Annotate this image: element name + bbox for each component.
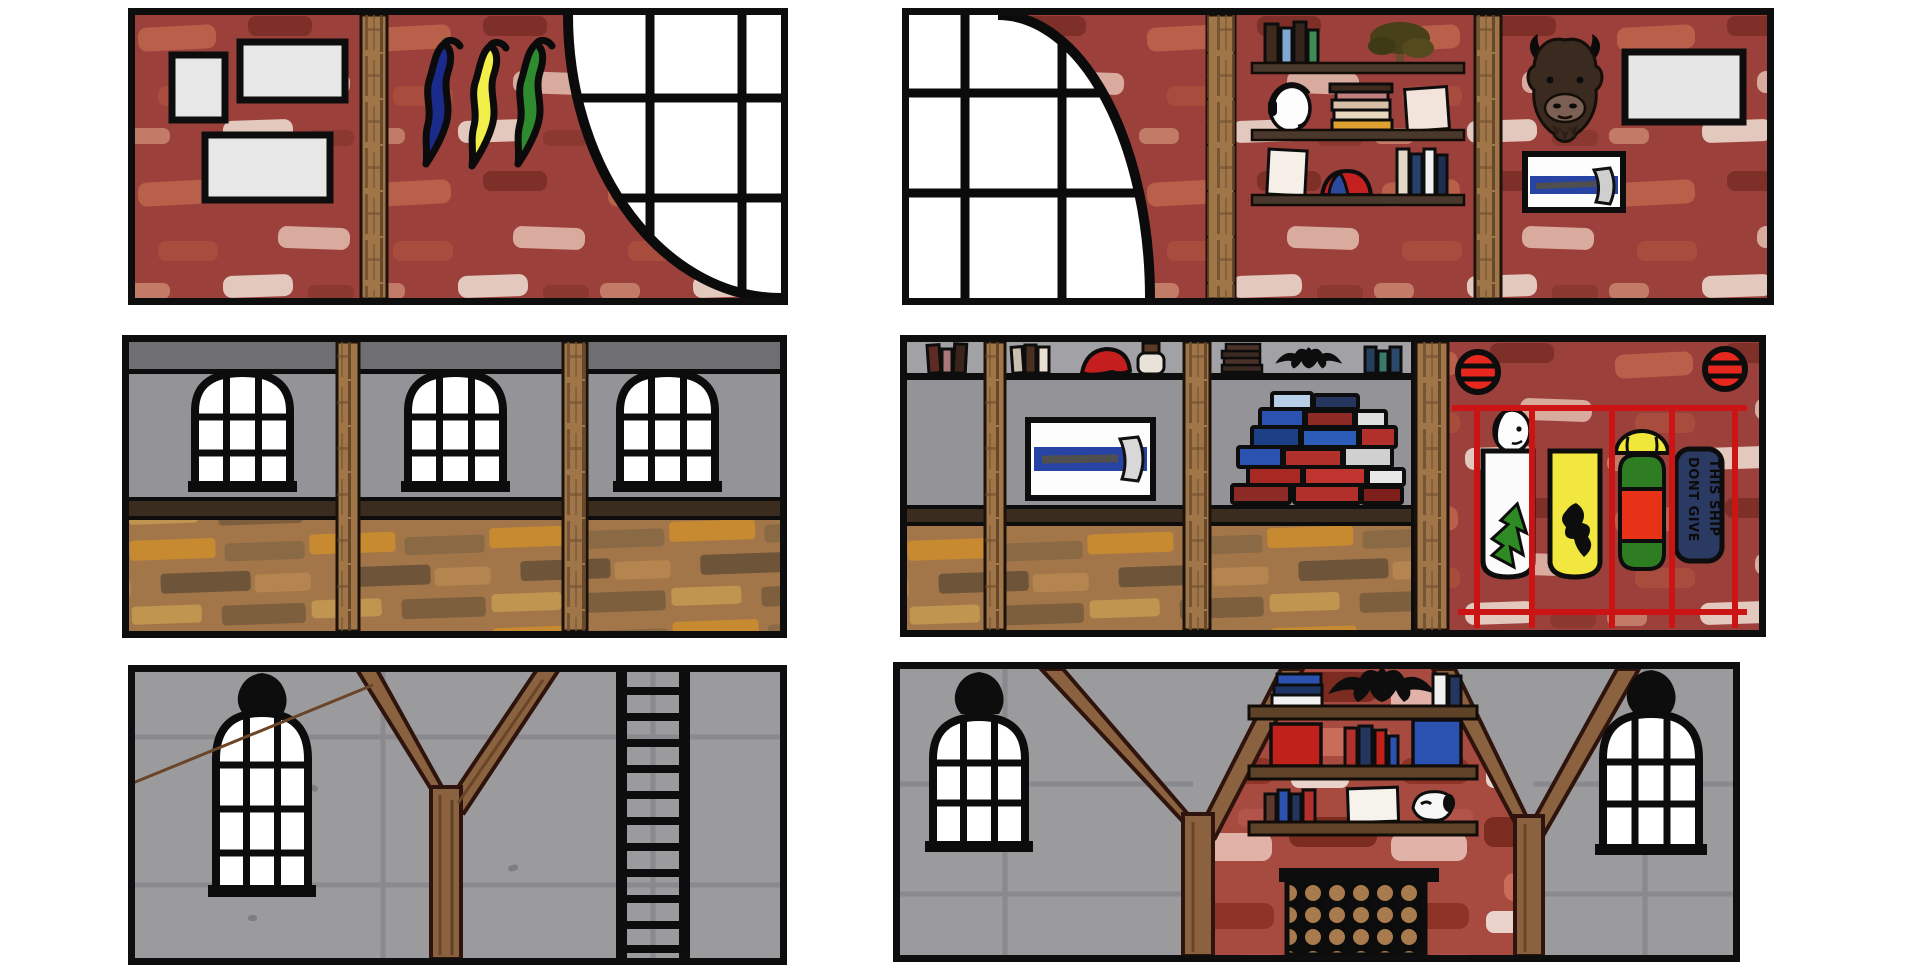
white-banner-pine-tree (1483, 451, 1535, 577)
arched-window (208, 713, 316, 897)
shelf-board (1249, 766, 1477, 779)
wood-beam (337, 342, 359, 631)
book (1345, 728, 1357, 766)
book (1389, 736, 1398, 766)
arched-window (925, 717, 1033, 852)
axe-display-case (1028, 420, 1153, 498)
plank-floor (129, 520, 780, 631)
book (1271, 724, 1321, 766)
wood-beam (361, 15, 387, 299)
axe-head (1594, 168, 1614, 204)
panel-top-left (128, 8, 788, 305)
paper-sheet (1405, 87, 1450, 132)
picture-frame (172, 55, 225, 120)
dark-rail (129, 501, 780, 516)
book (1413, 720, 1461, 766)
bookshelf (1249, 668, 1477, 835)
axe-display-case (1525, 154, 1623, 210)
firewood-stack (1279, 868, 1439, 955)
navy-sign: DONT GIVE THIS SHIP (1676, 449, 1722, 561)
shelf-board (1249, 706, 1477, 719)
panel-middle-right: DONT GIVE THIS SHIP (900, 335, 1766, 637)
shelf-books-bottom (1397, 149, 1447, 195)
shelf-board (1252, 195, 1464, 205)
panel-bottom-right (893, 662, 1740, 962)
porthole-lamp (1458, 352, 1498, 392)
arched-window (1595, 714, 1707, 855)
wood-beam (1184, 342, 1210, 630)
wood-beam (1207, 15, 1235, 299)
book-stack (1330, 84, 1392, 130)
panel-top-right (902, 8, 1774, 305)
top-shelf-books (1365, 347, 1401, 373)
panel-bottom-left (128, 665, 787, 965)
arched-window (401, 373, 510, 492)
picture-frame (240, 42, 345, 100)
book (1291, 794, 1301, 822)
shelf-board (1252, 130, 1464, 140)
shelf-board (1252, 63, 1464, 73)
picture-frame (1625, 52, 1743, 122)
arched-window (613, 373, 722, 492)
wood-beam (1416, 342, 1448, 630)
rail-line (129, 497, 780, 501)
panel-middle-left (122, 335, 787, 638)
rail-line (129, 516, 780, 520)
mounted-skull (1494, 410, 1530, 452)
book-stack (1272, 674, 1322, 706)
book-stack (1222, 344, 1262, 372)
picture-frame (205, 135, 330, 200)
book (1303, 790, 1315, 822)
book (1359, 726, 1372, 766)
book (1375, 730, 1386, 766)
book (1278, 790, 1289, 822)
book (1433, 674, 1447, 706)
paper-sheet (1267, 149, 1307, 196)
book (1265, 794, 1276, 822)
paper-sheet (1347, 787, 1398, 823)
wall-top-strip (129, 342, 780, 369)
wood-beam (985, 342, 1005, 630)
sign-text-line2: THIS SHIP (1706, 459, 1721, 537)
shelf-board (1249, 822, 1477, 835)
wood-beam (1475, 15, 1501, 299)
axe-handle (1042, 454, 1118, 463)
jug (1138, 337, 1164, 374)
book (1449, 676, 1461, 706)
arched-window (188, 373, 297, 492)
skull-with-headphones (1268, 85, 1310, 131)
yellow-banner-bird (1550, 451, 1600, 577)
concept-sheet-canvas: DONT GIVE THIS SHIP (0, 0, 1920, 975)
wood-beam (563, 342, 587, 631)
porthole-lamp (1705, 349, 1745, 389)
animal-skull (1413, 792, 1455, 821)
sign-text-line1: DONT GIVE (1685, 457, 1700, 542)
totem-with-helmet (1616, 431, 1668, 569)
